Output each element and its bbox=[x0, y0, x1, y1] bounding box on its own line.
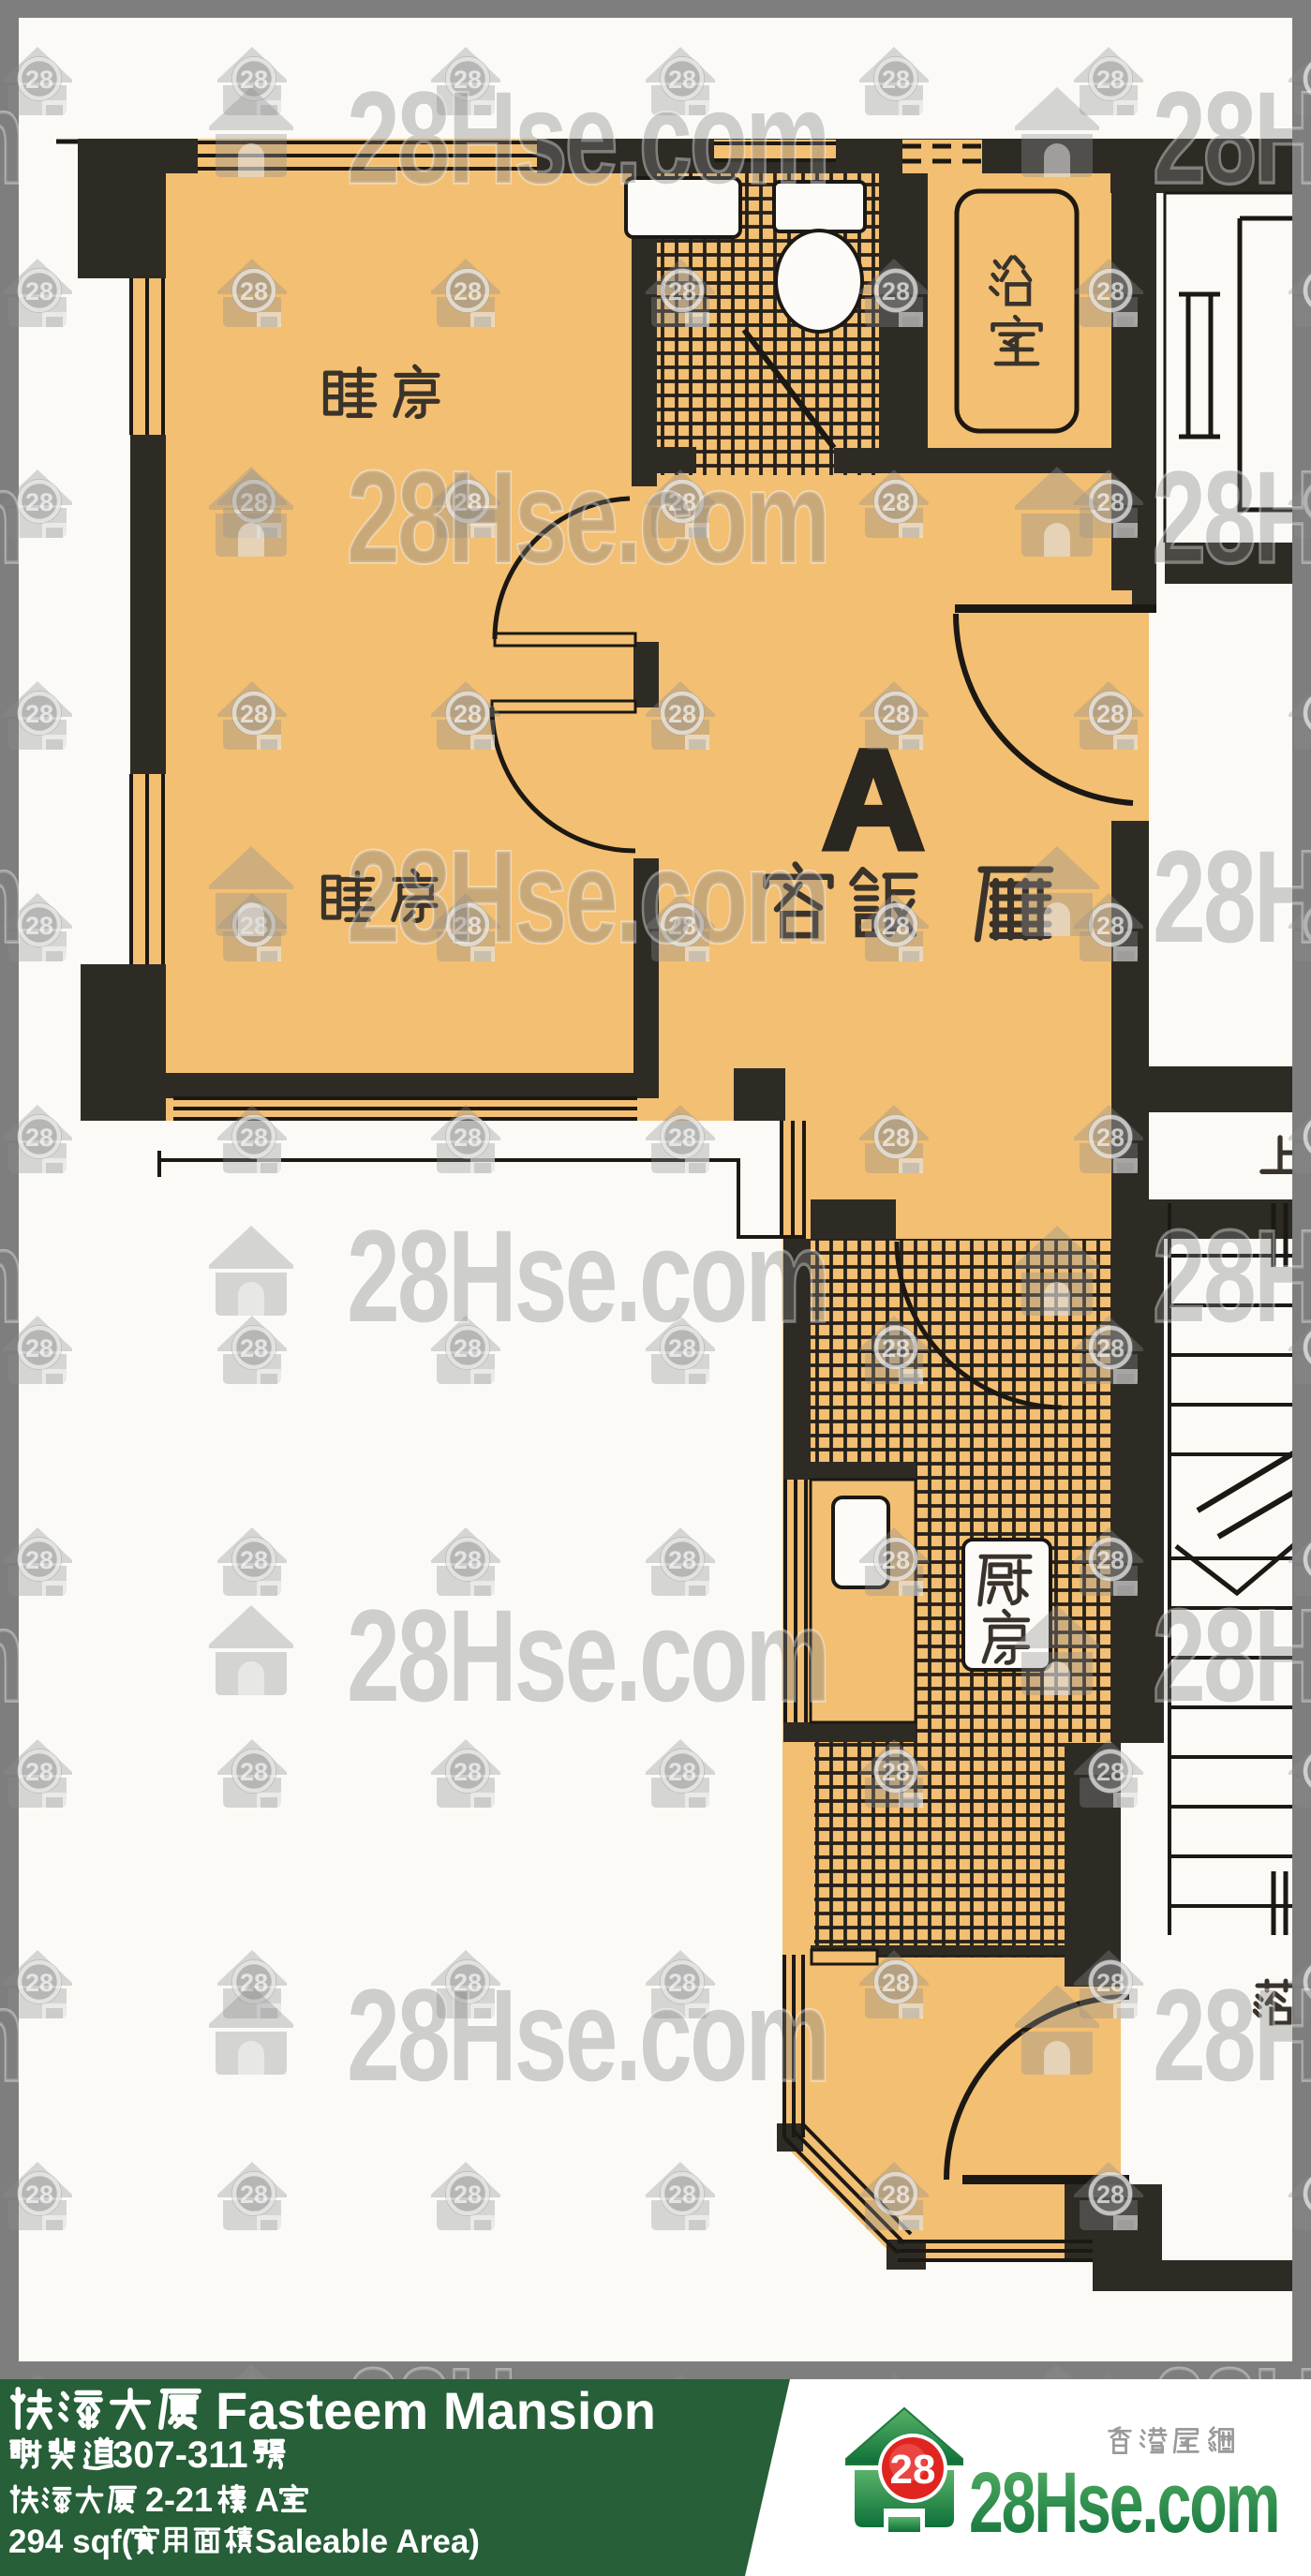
svg-text:28Hse.com: 28Hse.com bbox=[1153, 1961, 1311, 2107]
svg-text:28Hse.com: 28Hse.com bbox=[1153, 823, 1311, 969]
svg-text:28Hse.com: 28Hse.com bbox=[969, 2453, 1278, 2550]
svg-text:28Hse.com: 28Hse.com bbox=[0, 1582, 22, 1728]
svg-text:294 sqf(: 294 sqf( bbox=[8, 2524, 133, 2560]
svg-text:A: A bbox=[255, 2480, 279, 2519]
svg-text:28Hse.com: 28Hse.com bbox=[1153, 1582, 1311, 1728]
svg-text:28Hse.com: 28Hse.com bbox=[347, 64, 827, 210]
svg-text:28: 28 bbox=[890, 2447, 936, 2493]
svg-text:28Hse.com: 28Hse.com bbox=[0, 1961, 22, 2107]
svg-text:Fasteem Mansion: Fasteem Mansion bbox=[216, 2381, 656, 2440]
svg-text:28Hse.com: 28Hse.com bbox=[347, 823, 827, 969]
svg-text:28Hse.com: 28Hse.com bbox=[0, 1202, 22, 1348]
svg-text:28Hse.com: 28Hse.com bbox=[0, 823, 22, 969]
svg-text:28Hse.com: 28Hse.com bbox=[0, 443, 22, 589]
svg-text:28Hse.com: 28Hse.com bbox=[347, 1961, 827, 2107]
svg-text:28Hse.com: 28Hse.com bbox=[1153, 443, 1311, 589]
svg-text:28Hse.com: 28Hse.com bbox=[347, 1202, 827, 1348]
svg-text:28Hse.com: 28Hse.com bbox=[347, 1582, 827, 1728]
svg-text:2-21: 2-21 bbox=[145, 2480, 213, 2519]
svg-text:307-311: 307-311 bbox=[112, 2435, 248, 2476]
svg-text:Saleable Area): Saleable Area) bbox=[255, 2524, 480, 2560]
svg-text:28Hse.com: 28Hse.com bbox=[1153, 1202, 1311, 1348]
svg-text:28Hse.com: 28Hse.com bbox=[347, 443, 827, 589]
svg-text:28Hse.com: 28Hse.com bbox=[0, 64, 22, 210]
svg-text:28Hse.com: 28Hse.com bbox=[1153, 64, 1311, 210]
